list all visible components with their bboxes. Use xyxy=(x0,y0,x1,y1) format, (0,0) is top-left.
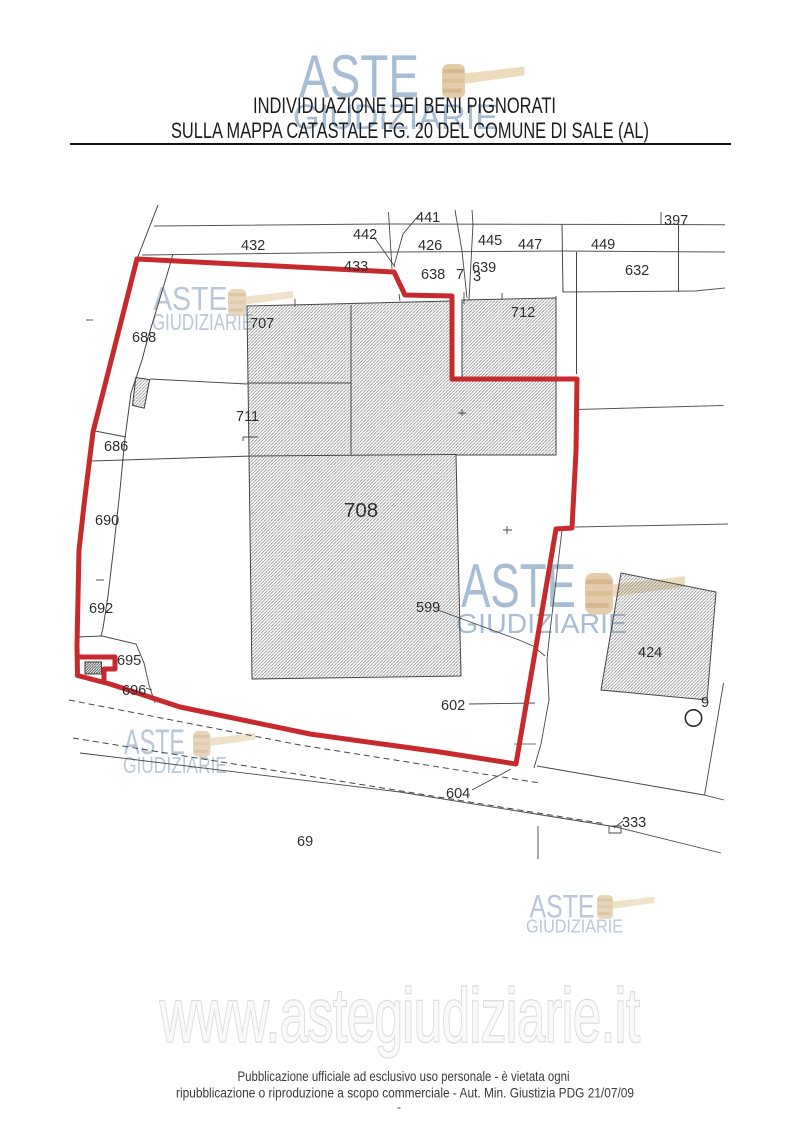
svg-text:-: - xyxy=(397,1100,401,1114)
svg-text:688: 688 xyxy=(132,330,156,346)
svg-text:711: 711 xyxy=(236,409,259,425)
svg-text:447: 447 xyxy=(518,237,542,253)
svg-text:424: 424 xyxy=(638,645,662,661)
svg-text:599: 599 xyxy=(416,600,440,616)
svg-text:9: 9 xyxy=(701,695,709,711)
svg-text:ripubblicazione o riproduzione: ripubblicazione o riproduzione a scopo c… xyxy=(176,1085,634,1101)
svg-text:Pubblicazione ufficiale ad esc: Pubblicazione ufficiale ad esclusivo uso… xyxy=(238,1068,570,1084)
svg-text:708: 708 xyxy=(344,499,378,522)
svg-text:426: 426 xyxy=(418,238,442,254)
svg-text:www.astegiudiziarie.it: www.astegiudiziarie.it xyxy=(159,974,640,1059)
svg-text:432: 432 xyxy=(241,238,265,254)
svg-text:445: 445 xyxy=(478,233,502,249)
svg-text:696: 696 xyxy=(122,683,146,699)
svg-text:3: 3 xyxy=(473,269,481,285)
svg-text:604: 604 xyxy=(446,786,470,802)
svg-text:442: 442 xyxy=(353,227,377,243)
svg-text:692: 692 xyxy=(89,601,113,617)
svg-text:638: 638 xyxy=(421,267,445,283)
svg-text:686: 686 xyxy=(104,439,128,455)
svg-text:INDIVIDUAZIONE DEI BENI PIGNOR: INDIVIDUAZIONE DEI BENI PIGNORATI xyxy=(253,93,556,118)
svg-text:632: 632 xyxy=(625,263,649,279)
svg-text:602: 602 xyxy=(441,698,465,714)
svg-text:397: 397 xyxy=(664,213,688,229)
svg-text:69: 69 xyxy=(297,834,313,850)
svg-text:712: 712 xyxy=(511,305,535,321)
svg-text:7: 7 xyxy=(456,267,464,283)
svg-text:GIUDIZIARIE: GIUDIZIARIE xyxy=(526,916,623,936)
svg-text:433: 433 xyxy=(344,259,368,275)
svg-text:SULLA MAPPA CATASTALE FG. 20 D: SULLA MAPPA CATASTALE FG. 20 DEL COMUNE … xyxy=(171,118,649,143)
svg-text:707: 707 xyxy=(250,316,274,332)
svg-text:695: 695 xyxy=(117,653,141,669)
svg-text:441: 441 xyxy=(416,210,440,226)
svg-text:333: 333 xyxy=(622,815,646,831)
svg-text:449: 449 xyxy=(591,237,615,253)
svg-text:690: 690 xyxy=(95,513,119,529)
